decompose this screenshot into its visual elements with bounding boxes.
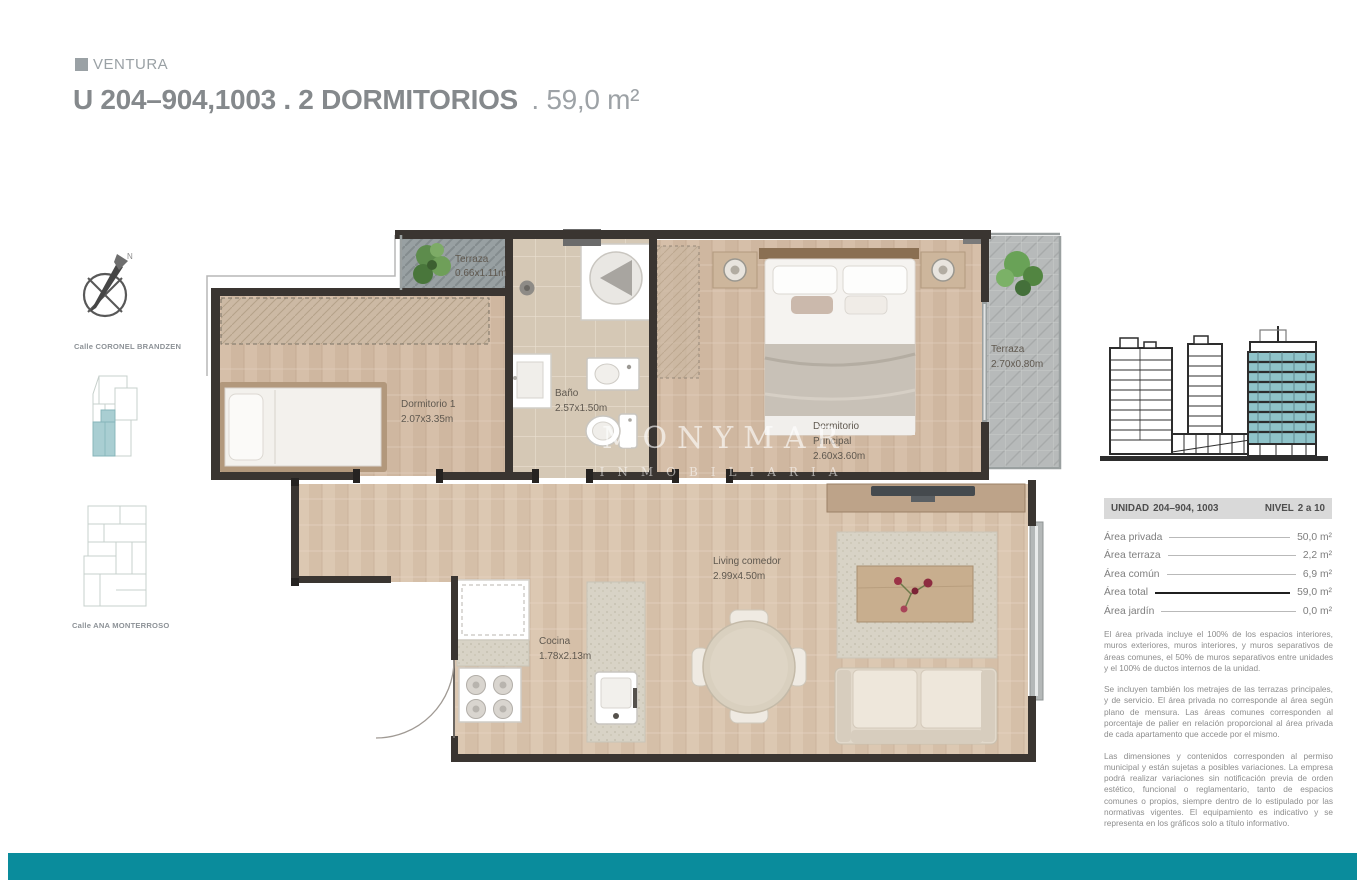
- page-title: U 204–904,1003 . 2 DORMITORIOS . 59,0 m²: [73, 84, 639, 116]
- area-row: Área común 6,9 m²: [1104, 565, 1332, 584]
- siteplan-upper: [85, 364, 147, 466]
- room-dims-cocina: 1.78x2.13m: [539, 651, 591, 662]
- area-row-value: 2,2 m²: [1303, 550, 1332, 561]
- area-row-label: Área total: [1104, 587, 1148, 598]
- unit-table-header: UNIDAD204–904, 1003 NIVEL2 a 10: [1104, 498, 1332, 519]
- tower-3-highlighted: [1248, 326, 1316, 456]
- watermark-line2: INMOBILIARIA: [600, 465, 851, 479]
- room-terraza-top: [401, 236, 513, 294]
- bed-double-icon: [759, 248, 919, 435]
- legal-paragraph-2: Se incluyen también los metrajes de las …: [1104, 684, 1333, 740]
- ground-line: [1100, 456, 1328, 461]
- nivel-value: 2 a 10: [1298, 503, 1325, 514]
- floorplan: Terraza 0.66x1.11m Dormitorio 1 2.07x3.3…: [205, 226, 1065, 766]
- unidad-cell: UNIDAD204–904, 1003: [1111, 503, 1219, 514]
- room-label-living: Living comedor: [713, 556, 781, 567]
- legal-paragraph-3: Las dimensiones y contenidos corresponde…: [1104, 751, 1333, 830]
- nightstand-icon: [713, 252, 757, 288]
- room-dims-bano: 2.57x1.50m: [555, 403, 607, 414]
- area-row-label: Área común: [1104, 569, 1160, 580]
- room-label-terraza-top: Terraza: [455, 254, 489, 265]
- street-label-bottom: Calle ANA MONTERROSO: [72, 621, 170, 630]
- bath-cabinet-icon: [511, 354, 551, 408]
- street-label-top: Calle CORONEL BRANDZEN: [74, 342, 181, 351]
- kitchen-island-icon: [587, 582, 645, 742]
- area-row-label: Área terraza: [1104, 550, 1161, 561]
- leader-line: [1168, 555, 1296, 556]
- nightstand-icon: [921, 252, 965, 288]
- stove-icon: [459, 668, 521, 722]
- sofa-icon: [835, 668, 997, 744]
- area-row: Área jardín 0,0 m²: [1104, 602, 1332, 621]
- brand-name: VENTURA: [93, 56, 168, 73]
- room-label-terraza-right: Terraza: [991, 344, 1025, 355]
- leader-line: [1155, 592, 1290, 594]
- siteplan-highlight: [93, 410, 115, 456]
- nivel-cell: NIVEL2 a 10: [1265, 503, 1325, 514]
- shower-head-icon: [520, 281, 535, 296]
- unidad-value: 204–904, 1003: [1153, 503, 1218, 514]
- entry-door-arc: [376, 660, 454, 738]
- compass-n-label: N: [127, 252, 133, 261]
- wardrobe-dorm1: [221, 298, 489, 344]
- window-right: [1030, 522, 1043, 700]
- room-label-dorm1: Dormitorio 1: [401, 399, 456, 410]
- nivel-label: NIVEL: [1265, 503, 1294, 514]
- compass-icon: N: [78, 246, 140, 326]
- tv-console-icon: [827, 484, 1025, 512]
- watermark-line1: MONYMAR: [602, 421, 848, 456]
- closet-dorm-ppal: [657, 246, 699, 378]
- room-dims-dorm1: 2.07x3.35m: [401, 414, 453, 425]
- coffee-table-icon: [857, 566, 973, 622]
- tower-1: [1110, 338, 1172, 454]
- bed-single-icon: [219, 382, 387, 472]
- area-row-value: 6,9 m²: [1303, 569, 1332, 580]
- room-label-bano: Baño: [555, 388, 579, 399]
- area-row: Área privada 50,0 m²: [1104, 528, 1332, 547]
- sink-icon: [587, 358, 639, 390]
- footer-accent-bar: [8, 853, 1357, 880]
- window-dorm-terraza: [982, 302, 987, 422]
- room-label-cocina: Cocina: [539, 636, 571, 647]
- legal-text: El área privada incluye el 100% de los e…: [1104, 629, 1333, 840]
- page-title-unit: U 204–904,1003 . 2 DORMITORIOS: [73, 84, 518, 115]
- room-dims-terraza-top: 0.66x1.11m: [455, 268, 507, 279]
- area-row: Área terraza 2,2 m²: [1104, 547, 1332, 566]
- area-row-value: 0,0 m²: [1303, 606, 1332, 617]
- brand-logo-square-icon: [75, 58, 88, 71]
- legal-paragraph-1: El área privada incluye el 100% de los e…: [1104, 629, 1333, 674]
- area-row-label: Área jardín: [1104, 606, 1154, 617]
- area-row-value: 59,0 m²: [1297, 587, 1332, 598]
- unidad-label: UNIDAD: [1111, 503, 1149, 514]
- area-row-total: Área total 59,0 m²: [1104, 584, 1332, 603]
- area-row-value: 50,0 m²: [1297, 532, 1332, 543]
- shower-icon: [581, 244, 651, 320]
- room-dims-living: 2.99x4.50m: [713, 571, 765, 582]
- unit-table: UNIDAD204–904, 1003 NIVEL2 a 10 Área pri…: [1104, 498, 1332, 621]
- podium: [1172, 434, 1252, 454]
- unit-table-rows: Área privada 50,0 m² Área terraza 2,2 m²…: [1104, 528, 1332, 621]
- leader-line: [1167, 574, 1296, 575]
- building-elevation: [1100, 326, 1330, 468]
- leader-line: [1161, 611, 1295, 612]
- watermark: MONYMAR INMOBILIARIA: [600, 421, 851, 479]
- kitchen-counter-icon: [457, 580, 529, 666]
- leader-line: [1169, 537, 1290, 538]
- brand: VENTURA: [75, 56, 168, 73]
- area-row-label: Área privada: [1104, 532, 1162, 543]
- room-dims-terraza-right: 2.70x0.80m: [991, 359, 1043, 370]
- siteplan-lower: [80, 502, 156, 610]
- page-title-area: . 59,0 m²: [531, 84, 639, 115]
